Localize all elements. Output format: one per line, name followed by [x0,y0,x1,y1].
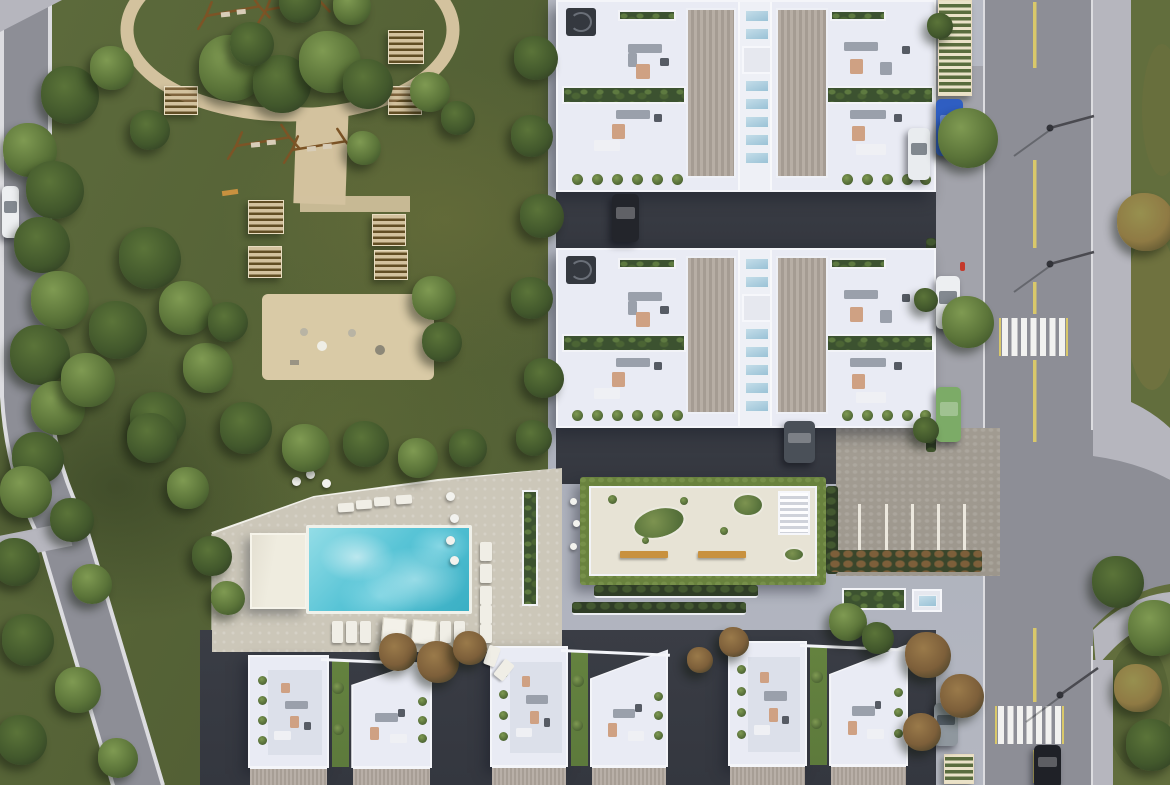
terrace-furniture [594,140,620,151]
roof-bush [737,665,746,674]
terrace-furniture [844,290,878,299]
terrace-furniture [370,727,379,740]
roof-terrace [748,657,801,752]
townhouse-unit [829,635,908,767]
tree [0,715,47,765]
roof-bush [572,174,583,185]
stairwell [566,8,596,36]
roof-bush [842,174,853,185]
terrace-furniture [902,46,910,54]
tree [119,227,181,289]
roof-utility-box [742,294,772,322]
skylight [745,10,769,22]
strip-tree [811,718,822,729]
hedge-strip [572,602,746,615]
roof-bush [654,692,663,701]
roof-bench [698,551,746,558]
terrace-planter [562,86,686,104]
tree [183,343,233,393]
terrace-planter [618,258,676,269]
ribbed-roof [686,256,736,414]
roof-bush [258,696,267,705]
garage-roof [492,766,567,785]
sun-lounger [480,564,492,583]
tree [1092,556,1144,608]
terrace-furniture [852,706,875,716]
parking-hedge-south [830,550,982,572]
tree [412,276,456,320]
tree [167,467,209,509]
green-strip [810,647,827,765]
terrace-furniture [274,731,291,740]
terrace-furniture [304,722,311,730]
terrace-furniture [852,126,865,141]
ribbed-roof [686,8,736,178]
roof-bush [632,174,643,185]
clubhouse-stair [778,491,810,535]
tree [927,13,953,39]
roof-bush [258,716,267,725]
terrace-planter [830,258,886,269]
round-lounger [570,543,577,550]
picnic-pergola [374,250,408,280]
east-street [983,0,1093,785]
round-lounger [446,492,455,501]
skylight [745,98,769,110]
roof-bush [882,174,893,185]
tree [343,59,393,109]
roof-bush [652,410,663,421]
skylight [745,364,769,376]
garage-roof [730,765,805,785]
terrace-furniture [660,58,669,66]
tree [903,713,941,751]
picnic-pergola [164,86,198,115]
sun-lounger [346,621,357,643]
roof-planter-oval [732,493,764,517]
skylight [745,116,769,128]
terrace-furniture [616,358,650,367]
skylight-box [912,589,942,612]
apartment-block-mid [556,248,936,428]
tree [862,622,894,654]
roof-bush [902,410,913,421]
tree [50,498,94,542]
terrace-furniture [894,114,902,122]
sun-lounger [480,605,492,624]
terrace-furniture [902,294,910,302]
terrace-furniture [281,683,290,693]
roof-planter-oval [783,547,805,562]
tree [98,738,138,778]
terrace-furniture [844,42,878,51]
roof-bush [592,410,603,421]
tree [89,301,147,359]
terrace-furniture [856,144,886,155]
skylight [745,28,769,40]
roof-bush [672,174,683,185]
tree [211,581,245,615]
roof-bush [737,687,746,696]
tree [230,22,274,66]
townhouse-unit-roof [592,642,666,765]
tree [159,281,213,335]
tree [398,438,438,478]
sun-lounger [480,542,492,561]
black-car-north-driveway [612,194,639,242]
tree [208,302,248,342]
sun-lounger [356,499,373,509]
roof-bush [862,410,873,421]
car-windshield [616,207,635,219]
terrace-furniture [285,701,308,710]
roof-bush [654,711,663,720]
terrace-furniture [764,691,787,701]
black-car-east-road [1034,745,1061,785]
garage-roof [831,765,906,785]
ribbed-roof [776,8,828,178]
terrace-furniture [635,704,642,713]
tree [343,421,389,467]
terrace-furniture [522,676,531,687]
sun-lounger [332,621,343,643]
strip-tree [811,671,823,683]
tree [453,631,487,665]
townhouse-unit [590,640,668,767]
tree [26,161,84,219]
car-windshield [911,143,927,155]
roof-terrace [268,670,322,755]
roof-bush [612,174,623,185]
roof-bush [894,729,903,738]
terrace-furniture [654,114,662,122]
terrace-furniture [613,709,635,719]
terrace-planter [826,334,934,352]
roof-bush [842,410,853,421]
terrace-furniture [850,358,886,367]
terrace-furniture [628,292,662,301]
tree [913,417,939,443]
tree [942,296,994,348]
round-lounger [450,514,459,523]
tree [905,632,951,678]
tree [514,36,558,80]
green-car-east-layby [936,387,961,442]
tree [516,420,552,456]
roof-bench [620,551,668,558]
roof-bush [258,736,267,745]
roof-bush [894,708,903,717]
terrace-furniture [654,362,662,370]
tree [1117,193,1170,251]
skylight [745,328,769,340]
tree [940,674,984,718]
tree [1126,719,1170,771]
tree [687,647,713,673]
roof-utility-box [742,46,772,74]
tree [511,277,553,319]
apartment-block-north [556,0,936,192]
tree [282,424,330,472]
green-strip [571,652,588,765]
townhouse-unit-roof [831,637,906,765]
fire-hydrant [960,262,965,271]
garage-roof [592,766,667,785]
tree [130,110,170,150]
terrace-furniture [894,362,902,370]
tree [61,353,115,407]
terrace-furniture [760,672,769,683]
skylight [745,400,769,412]
roof-bush [499,690,508,699]
townhouse-unit [728,641,807,767]
terrace-furniture [850,59,863,74]
tree [2,614,54,666]
round-lounger [573,520,580,527]
tree [347,131,381,165]
round-lounger [446,536,455,545]
roof-bush [672,410,683,421]
pool-house [250,533,307,609]
tree [90,46,134,90]
strip-tree [572,720,583,731]
sun-lounger [440,621,451,643]
roof-bush [737,730,746,739]
roof-bush [499,711,508,720]
roof-bush [572,410,583,421]
roof-bush [632,410,643,421]
tree [192,536,232,576]
car-windshield [940,402,958,415]
walkway-planter [522,490,538,606]
terrace-furniture [398,709,405,717]
car-windshield [788,433,810,443]
skylight [745,276,769,288]
terrace-planter [618,10,676,21]
strip-tree [572,675,584,687]
roof-spine [738,2,772,190]
roof-bush [592,174,603,185]
terrace-furniture [850,110,886,119]
terrace-furniture [526,695,548,704]
terrace-furniture [754,725,771,735]
tree [511,115,553,157]
terrace-furniture [375,713,398,722]
terrace-furniture [848,721,857,735]
terrace-furniture [608,723,617,736]
terrace-furniture [530,711,539,724]
terrace-furniture [782,716,789,725]
strip-tree [332,682,344,694]
roof-bush [737,708,746,717]
roof-bush [654,731,663,740]
picnic-pergola [248,246,282,278]
car-windshield [4,201,16,213]
tree [719,627,749,657]
roof-bush [652,174,663,185]
terrace-furniture [856,392,886,403]
tree [520,194,564,238]
pool-table [292,477,301,486]
terrace-furniture [616,110,650,119]
aerial-site-plan [0,0,1170,785]
roof-bush [882,410,893,421]
terrace-furniture [880,310,892,323]
ribbed-roof [776,256,828,414]
terrace-furniture [867,729,884,739]
skylight [745,80,769,92]
sun-lounger [374,496,391,506]
hedge-strip [594,585,758,598]
terrace-furniture [636,312,650,327]
street-pergola-south [944,754,974,784]
roof-spine [738,250,772,426]
strip-tree [333,724,344,735]
round-lounger [570,498,577,505]
picnic-pergola [372,214,406,246]
roof-bush [418,734,427,743]
sun-lounger [396,494,413,504]
roof-bush [418,716,427,725]
tree [422,322,462,362]
skylight [745,258,769,270]
car-windshield [937,715,954,725]
picnic-pergola [248,200,284,234]
townhouse-unit [248,655,329,768]
terrace-furniture [290,716,299,728]
tree [220,402,272,454]
sun-lounger [480,586,492,605]
terrace-furniture [544,718,551,726]
roof-terrace [510,662,562,753]
terrace-furniture [769,708,778,721]
tree [1114,664,1162,712]
tree [0,466,52,518]
sun-lounger [360,621,371,643]
terrace-furniture [850,307,863,322]
terrace-furniture [612,372,625,387]
tree [524,358,564,398]
garage-roof [353,767,430,785]
tree [127,413,177,463]
terrace-furniture [875,701,882,710]
tree [72,564,112,604]
pool-table [322,479,331,488]
sun-lounger [338,502,355,512]
skylight [745,152,769,164]
terrace-furniture [390,734,407,743]
terrace-planter [562,334,686,352]
skylight [745,382,769,394]
tree [379,633,417,671]
terrace-furniture [628,44,662,53]
terrace-furniture [612,124,625,139]
terrace-furniture [628,731,644,741]
roof-bush [499,732,508,741]
terrace-planter [830,10,886,21]
terrace-furniture [852,374,865,389]
terrace-furniture [636,64,650,79]
tree [14,217,70,273]
roof-bush [258,676,267,685]
townhouse-cluster [488,636,670,785]
tree [449,429,487,467]
green-strip [332,660,350,766]
tree [914,288,938,312]
clubhouse-roof-garden [580,477,826,585]
car-windshield [1038,757,1057,767]
skylight [745,134,769,146]
terrace-furniture [880,62,892,75]
terrace-furniture [660,306,669,314]
tree [441,101,475,135]
tree [938,108,998,168]
skylight [745,346,769,358]
picnic-pergola [388,30,424,64]
roof-bush [894,688,903,697]
tree [55,667,101,713]
garage-roof [250,767,327,785]
terrace-planter [826,86,934,104]
white-car-east-garage [908,128,930,180]
stairwell [566,256,596,284]
grey-van-south-driveway [784,421,815,463]
roof-bush [612,410,623,421]
terrace-furniture [594,388,620,399]
roof-bush [862,174,873,185]
roof-bush [418,697,427,706]
terrace-furniture [516,728,532,737]
round-lounger [450,556,459,565]
tree [31,271,89,329]
